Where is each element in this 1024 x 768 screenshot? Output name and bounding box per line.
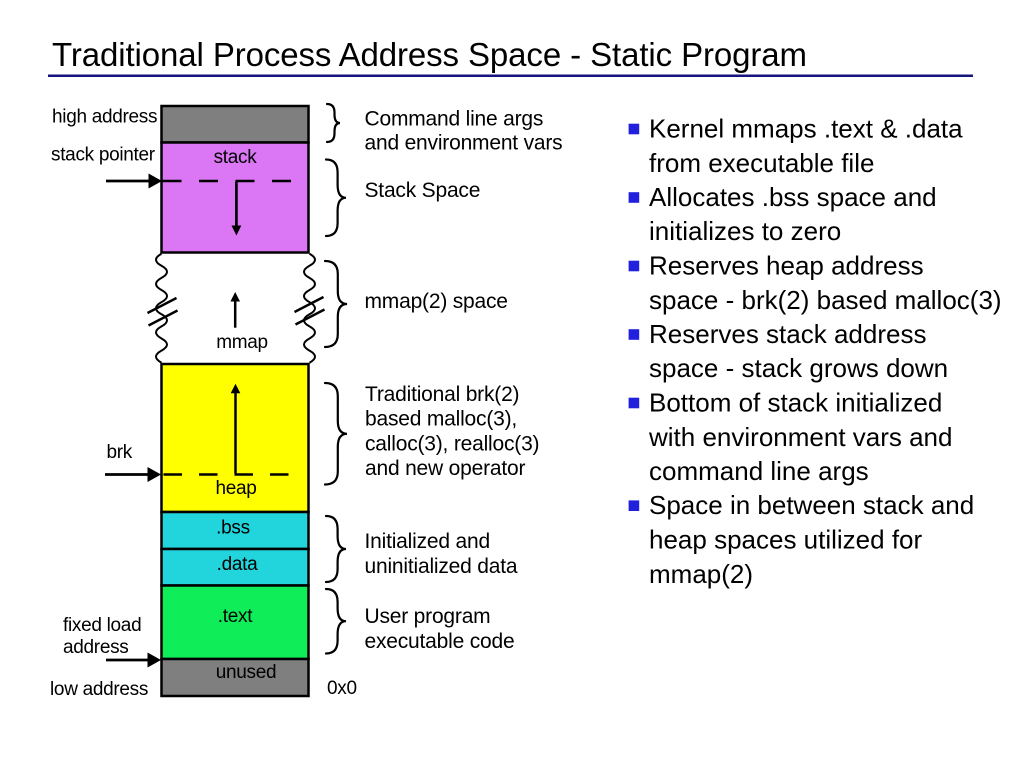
svg-text:and environment vars: and environment vars — [365, 132, 563, 155]
svg-text:high address: high address — [52, 107, 157, 128]
svg-text:with environment vars and: with environment vars and — [648, 422, 952, 452]
svg-text:Kernel mmaps .text & .data: Kernel mmaps .text & .data — [649, 114, 963, 144]
svg-text:0x0: 0x0 — [327, 678, 357, 699]
svg-text:Space in between stack and: Space in between stack and — [649, 490, 974, 520]
svg-text:space - brk(2) based malloc(3): space - brk(2) based malloc(3) — [649, 285, 1002, 315]
svg-text:Reserves stack address: Reserves stack address — [649, 319, 926, 349]
svg-text:User program: User program — [365, 605, 491, 628]
svg-text:low address: low address — [50, 679, 148, 700]
svg-text:based malloc(3),: based malloc(3), — [365, 408, 517, 431]
svg-text:and new operator: and new operator — [365, 457, 525, 480]
svg-text:stack pointer: stack pointer — [51, 145, 156, 166]
svg-text:from executable file: from executable file — [649, 148, 874, 178]
svg-text:calloc(3), realloc(3): calloc(3), realloc(3) — [365, 433, 539, 456]
svg-text:mmap(2) space: mmap(2) space — [365, 290, 508, 313]
svg-text:Initialized and: Initialized and — [365, 530, 490, 553]
svg-text:heap spaces utilized for: heap spaces utilized for — [649, 525, 923, 555]
svg-text:Reserves heap address: Reserves heap address — [649, 251, 924, 281]
svg-text:executable code: executable code — [365, 630, 515, 653]
svg-text:initializes to zero: initializes to zero — [649, 216, 841, 246]
svg-text:Stack Space: Stack Space — [365, 179, 481, 202]
svg-text:command line args: command line args — [649, 456, 869, 486]
svg-text:uninitialized data: uninitialized data — [365, 555, 518, 578]
svg-text:Bottom of stack initialized: Bottom of stack initialized — [649, 388, 942, 418]
svg-text:Allocates .bss space and: Allocates .bss space and — [649, 182, 937, 212]
svg-text:mmap: mmap — [216, 332, 268, 353]
svg-text:Traditional Process Address Sp: Traditional Process Address Space - Stat… — [52, 36, 807, 73]
svg-text:mmap(2): mmap(2) — [649, 559, 753, 589]
svg-text:address: address — [63, 637, 129, 658]
svg-text:fixed load: fixed load — [63, 615, 141, 636]
svg-text:.bss: .bss — [216, 518, 250, 539]
svg-text:heap: heap — [215, 478, 256, 499]
svg-text:Command line args: Command line args — [365, 107, 544, 130]
svg-text:.text: .text — [218, 606, 253, 627]
svg-text:Traditional brk(2): Traditional brk(2) — [365, 383, 519, 406]
svg-text:unused: unused — [216, 662, 277, 683]
svg-text:.data: .data — [217, 554, 258, 575]
svg-text:space - stack grows down: space - stack grows down — [649, 353, 948, 383]
svg-text:stack: stack — [214, 147, 258, 168]
svg-text:brk: brk — [107, 442, 133, 463]
